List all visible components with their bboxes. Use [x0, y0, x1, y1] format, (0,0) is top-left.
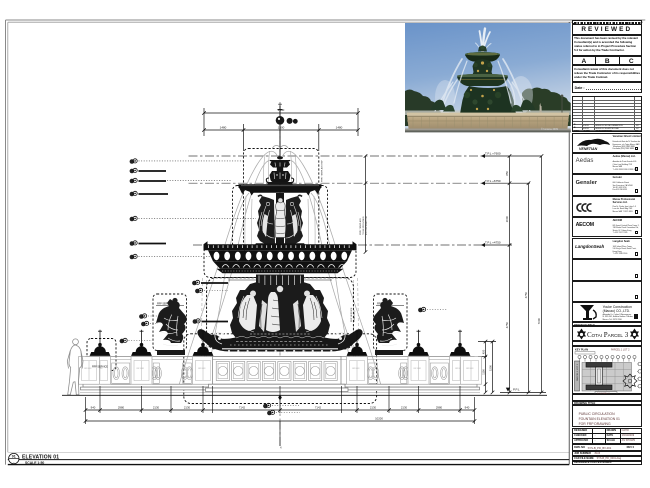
svg-text:FRP SERV: FRP SERV [414, 368, 421, 370]
svg-text:1500: 1500 [278, 125, 285, 129]
svg-text:2130: 2130 [370, 406, 377, 410]
svg-text:1480: 1480 [336, 125, 343, 129]
svg-text:FRP SERV: FRP SERV [198, 368, 205, 370]
svg-text:2130: 2130 [401, 406, 408, 410]
svg-text:4750: 4750 [505, 322, 509, 329]
svg-text:940: 940 [465, 406, 470, 410]
svg-text:PIPE TEMPLATE: PIPE TEMPLATE [359, 218, 362, 235]
svg-text:TO BE PROVIDED: TO BE PROVIDED [363, 216, 365, 235]
svg-text:450: 450 [481, 349, 485, 354]
svg-text:6750: 6750 [524, 292, 528, 299]
svg-text:T.P.L +6750: T.P.L +6750 [485, 179, 501, 183]
svg-text:BY CONTRACTOR: BY CONTRACTOR [365, 216, 368, 235]
svg-text:PARCEL 1 LOT 2: PARCEL 1 LOT 2 [611, 348, 630, 351]
svg-text:FRP SERV: FRP SERV [466, 368, 473, 370]
svg-text:PARCEL 1 LOT 1: PARCEL 1 LOT 1 [576, 363, 579, 381]
svg-text:2960: 2960 [278, 108, 285, 112]
svg-text:VENETIAN: VENETIAN [579, 147, 598, 151]
svg-text:¢: ¢ [280, 446, 282, 450]
svg-text:01: 01 [12, 455, 16, 459]
svg-text:1500: 1500 [488, 365, 492, 371]
svg-text:FRP SERVICE: FRP SERVICE [92, 366, 108, 369]
svg-text:10200: 10200 [375, 417, 383, 421]
svg-text:1100: 1100 [481, 369, 485, 375]
svg-text:FRP SERV: FRP SERV [352, 368, 359, 370]
svg-text:2130: 2130 [153, 406, 160, 410]
svg-text:T.P.L +4750: T.P.L +4750 [485, 241, 501, 245]
svg-text:850: 850 [505, 171, 509, 176]
svg-text:2000: 2000 [505, 216, 509, 223]
svg-text:7142: 7142 [239, 406, 246, 410]
svg-text:7600: 7600 [537, 318, 541, 325]
svg-text:ZONE REQ.: ZONE REQ. [354, 310, 356, 322]
svg-text:2130: 2130 [184, 406, 191, 410]
svg-text:FRP SERV: FRP SERV [84, 368, 91, 370]
svg-text:2980: 2980 [118, 406, 125, 410]
svg-text:P.P.L: P.P.L [513, 387, 520, 391]
svg-text:7142: 7142 [315, 406, 322, 410]
svg-text:FRP SERVICE: FRP SERVICE [351, 307, 353, 322]
svg-text:FRP SERV: FRP SERV [137, 368, 144, 370]
svg-text:© fontaine 2009: © fontaine 2009 [541, 128, 559, 131]
svg-text:PIPE TEMPLATE REF: PIPE TEMPLATE REF [321, 159, 324, 182]
svg-text:T.P.L +7600: T.P.L +7600 [485, 152, 501, 156]
svg-text:-: - [13, 460, 14, 464]
svg-text:KEY PLAN: KEY PLAN [575, 347, 588, 351]
svg-text:ELEVATION 01: ELEVATION 01 [22, 454, 59, 460]
svg-text:2980: 2980 [436, 406, 443, 410]
svg-text:1480: 1480 [220, 125, 227, 129]
svg-text:940: 940 [91, 406, 96, 410]
svg-text:SCALE 1:50: SCALE 1:50 [25, 461, 44, 465]
